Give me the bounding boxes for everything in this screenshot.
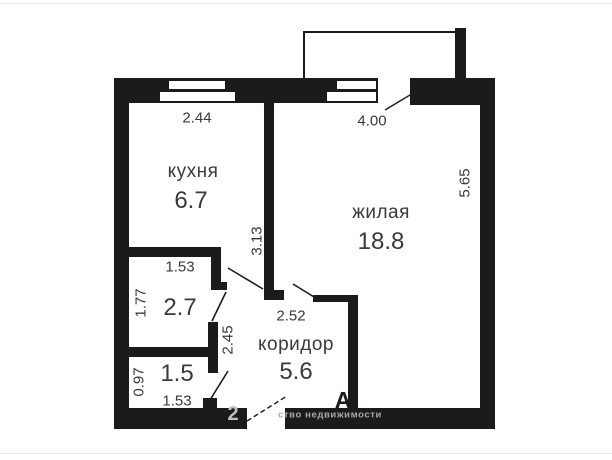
wc-door-leaf [210,371,228,400]
room-area-living: 18.8 [358,228,405,256]
dim-divider-height: 3.13 [249,226,266,255]
living-door-leaf [293,284,314,297]
room-label-kitchen: кухня [168,161,219,183]
balcony-right-wall [455,28,466,78]
dim-corridor-width: 2.52 [276,308,305,325]
page-top-border [0,3,612,4]
dim-bathroom-width: 1.53 [165,259,194,276]
dim-leader-line [385,95,410,110]
kitchen-window-inner [158,90,237,103]
wall-wc-door-nub [203,398,217,410]
wall-kitchen-bathroom [126,247,221,257]
living-window-inner [325,90,378,103]
floor-plan: кухня 6.7 жилая 18.8 коридор 5.6 2.7 1.5… [0,0,612,460]
dim-bathroom-height: 1.77 [133,288,150,317]
room-area-bathroom: 2.7 [163,294,196,322]
room-area-kitchen: 6.7 [174,187,207,215]
wall-right [480,78,495,429]
watermark-logo-glyph: 2 [227,404,238,424]
room-area-wc: 1.5 [160,360,193,388]
wall-wc-corridor [208,322,218,373]
room-label-living: жилая [352,202,410,224]
wall-kitchen-living [264,100,274,300]
wall-kitchen-living-foot [264,290,284,300]
dim-living-width: 4.00 [357,113,386,130]
dim-kitchen-width: 2.44 [182,110,211,127]
dim-wc-height: 0.97 [131,367,148,396]
room-area-corridor: 5.6 [279,358,312,386]
door-swing-overlay [0,0,612,460]
wall-bathroom-stub-foot [211,282,227,290]
page-bottom-border [0,453,612,454]
dim-living-height: 5.65 [457,168,474,197]
balcony-left-line [303,31,305,78]
dim-corridor-height: 2.45 [220,325,237,354]
balcony-top-line [303,31,457,33]
bathroom-door-leaf [212,292,226,321]
dim-wc-width: 1.53 [162,393,191,410]
wall-bathroom-wc [126,347,208,357]
kitchen-door-leaf [228,268,263,289]
room-label-corridor: коридор [258,334,334,356]
watermark-agency-text: ство недвижимости [278,410,382,421]
